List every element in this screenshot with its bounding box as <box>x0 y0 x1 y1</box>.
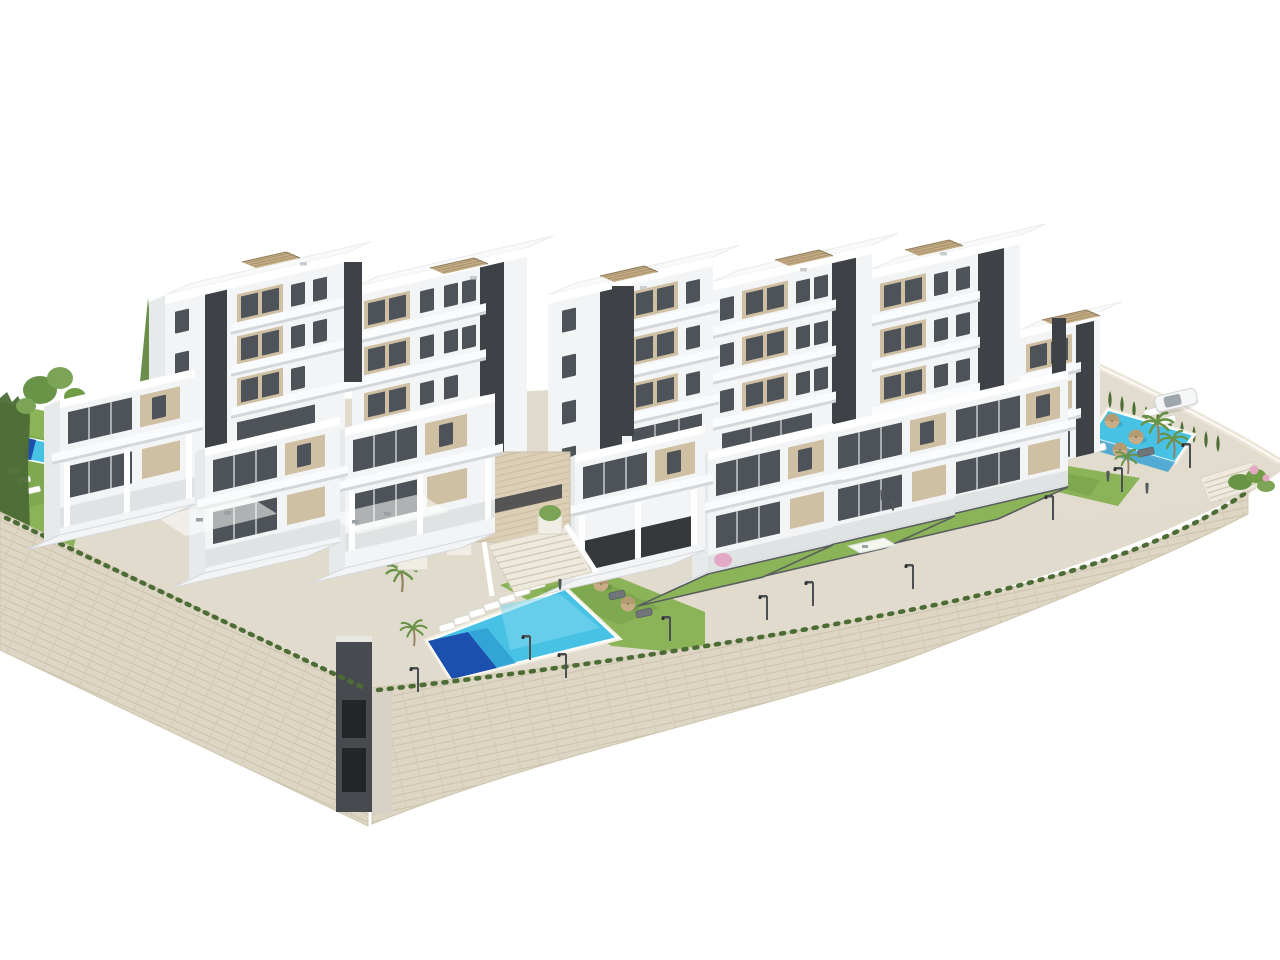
blossom-tree <box>714 553 732 567</box>
architectural-render <box>0 0 1280 960</box>
render-canvas <box>0 0 1280 960</box>
